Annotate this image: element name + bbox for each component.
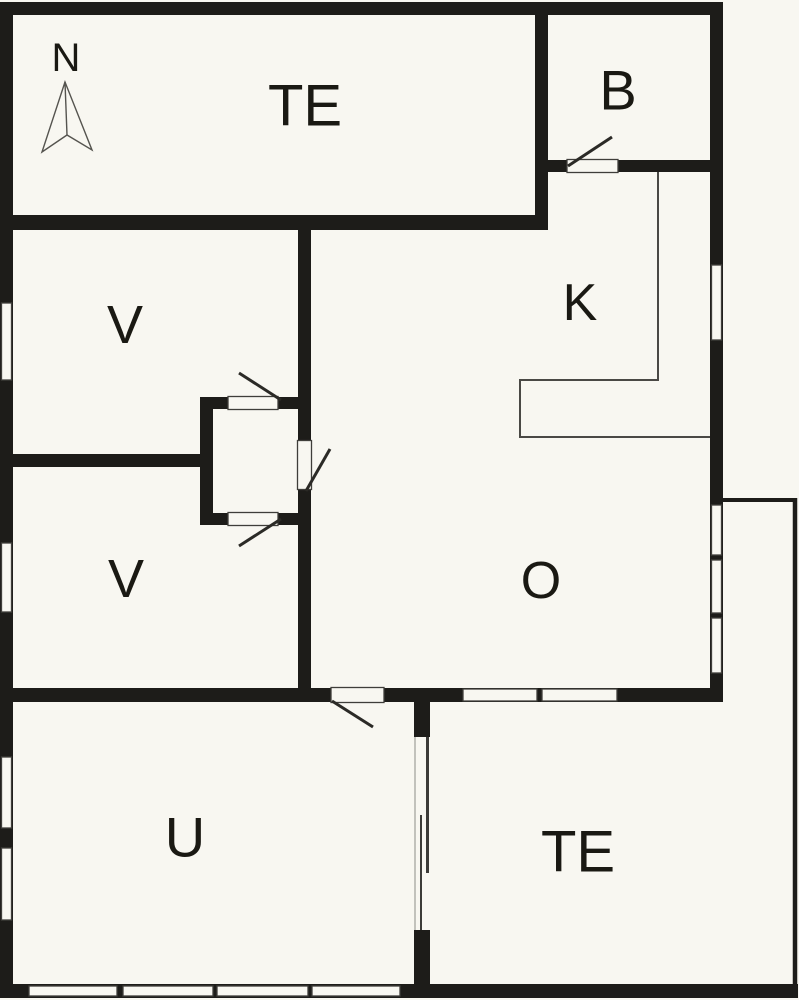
wall-rooms-divider (0, 454, 202, 467)
threshold-vestibule-north-door (228, 397, 278, 410)
door-leaf-u (332, 701, 373, 727)
window-south-u-1 (29, 986, 117, 996)
window-east-living-1 (712, 505, 722, 555)
wall-bath-south-right (618, 160, 722, 172)
label-te-south: TE (541, 820, 615, 885)
label-b: B (599, 59, 636, 122)
label-v-lower: V (108, 549, 144, 609)
window-living-terrace-2 (542, 689, 617, 701)
label-v-upper: V (107, 295, 143, 355)
window-east-living-3 (712, 618, 722, 673)
label-north-letter: N (52, 36, 81, 80)
kitchen-counter-outline (520, 172, 710, 437)
wall-east-upper (710, 2, 723, 503)
window-east-living-2 (712, 560, 722, 613)
window-south-u-4 (312, 986, 400, 996)
label-o: O (521, 552, 561, 610)
window-south-u-2 (123, 986, 213, 996)
window-west-v-lower (2, 543, 12, 612)
threshold-u-door (331, 688, 384, 703)
wall-terrace-north-south (0, 215, 548, 230)
floorplan-page: NTEBKVVOUTE (0, 0, 799, 1000)
label-k: K (563, 274, 598, 332)
window-east-kitchen (712, 265, 722, 340)
window-west-v-upper (2, 303, 12, 380)
floor-plan-canvas: NTEBKVVOUTE (0, 0, 799, 1000)
window-west-u-2 (2, 848, 12, 920)
wall-north-outer (0, 2, 723, 15)
label-te-north: TE (268, 74, 342, 139)
window-living-terrace-1 (463, 689, 537, 701)
threshold-vestibule-south-door (228, 513, 278, 526)
wall-vestibule-west (200, 397, 213, 525)
window-west-u-1 (2, 757, 12, 828)
label-u: U (165, 806, 205, 869)
wall-bath-west (535, 2, 548, 230)
window-south-u-3 (217, 986, 308, 996)
wall-bath-south-left (535, 160, 568, 172)
